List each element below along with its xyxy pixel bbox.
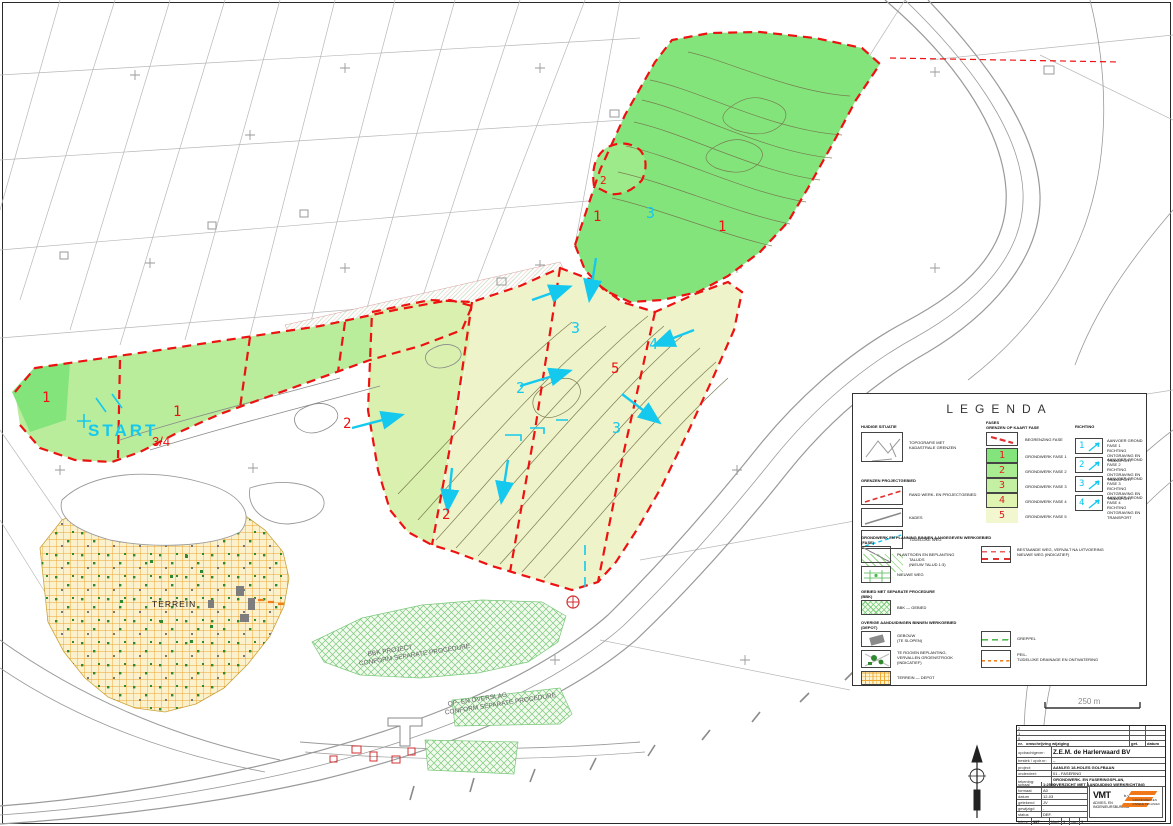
legend-plantsoen-label: PLANTSOEN EN BEPLANTING [897, 552, 977, 557]
legend-richting-header: RICHTING [1075, 424, 1094, 429]
legend-left-row1: TOPOGRAFIE MET KADASTRALE GRENZEN [909, 440, 979, 450]
svg-text:1: 1 [173, 404, 181, 420]
svg-text:2: 2 [442, 507, 450, 523]
logo-word: VMT [1093, 790, 1111, 800]
scale-bar: 250 m [1045, 697, 1140, 708]
getekend-value: JV [1041, 800, 1087, 805]
gewijzigd-value: - [1041, 806, 1087, 811]
formaat-value: A0 [1041, 788, 1087, 793]
legend-swatch-richting4: 4 [1075, 495, 1103, 511]
bestek-value: – [1051, 758, 1165, 763]
rev-header-get: get. [1129, 741, 1145, 746]
svg-text:2: 2 [600, 174, 607, 187]
legend-title: LEGENDA [853, 402, 1146, 416]
legend-swatch-greppel [981, 631, 1011, 647]
legend-fase3-label: GRONDWERK FASE 3 [1025, 484, 1067, 489]
legend-richting4-label: AANVOER GROND FASE 4 RICHTING ONTGRAVING… [1107, 495, 1147, 520]
legend-swatch-plantsoen [861, 546, 891, 563]
rev-header-nr: nr. [1017, 741, 1025, 746]
logo-rsub: GRONDWERKEN CIVIELE TECHNIEK [1133, 799, 1160, 806]
legend-panel: LEGENDA HUIDIGE SITUATIE TOPOGRAFIE MET … [852, 393, 1147, 686]
svg-text:1: 1 [42, 390, 50, 406]
legend-swatch-kades [861, 508, 903, 527]
legend-swatch-fase1: 1 [986, 448, 1018, 463]
legend-fase2-label: GRONDWERK FASE 2 [1025, 469, 1067, 474]
legend-bbk-label: BBK — GEBIED [897, 605, 977, 610]
onderdeel-value: 01 - FASERING [1051, 771, 1165, 776]
legend-depot-label: TERREIN — DEPOT [897, 675, 977, 680]
svg-text:1: 1 [593, 209, 601, 225]
title-block: 2 1 0 nr. omschrijving wijziging get. da… [1016, 725, 1166, 822]
north-arrow [968, 746, 986, 818]
ponds [61, 474, 324, 545]
legend-swatch-weg-vervalt [981, 546, 1011, 563]
start-phase-label: 3/4 [152, 434, 170, 449]
field-label: onderdeel: [1017, 771, 1051, 776]
legend-swatch-richting2: 2 [1075, 457, 1103, 473]
teknr-value: 117 [1031, 818, 1049, 825]
legend-weg-vervalt-label: BESTAANDE WEG, VERVALT NA UITVOERING NIE… [1017, 547, 1127, 557]
legend-swatch-fase2: 2 [986, 463, 1018, 478]
legend-swatch-topografie [861, 432, 903, 462]
client-name: Z.E.M. de Harlerwaard BV [1051, 747, 1165, 757]
legend-bottom-header3: OVERIGE AANDUIDINGEN BINNEN WERKGEBIED (… [861, 620, 1061, 630]
legend-swatch-fase3: 3 [986, 478, 1018, 493]
legend-fase1-label: GRONDWERK FASE 1 [1025, 454, 1067, 459]
legend-swatch-richting1: 1 [1075, 438, 1103, 454]
legend-swatch-richting3: 3 [1075, 476, 1103, 492]
legend-swatch-bbk [861, 600, 891, 615]
project-value: AANLEG 18-HOLES GOLFBAAN [1051, 764, 1165, 770]
drawing-sheet: START 3/4 TERREIN BBK PROJECT CONFORM SE… [0, 0, 1173, 826]
legend-left-row5: TALUDS (NIEUW TALUD 1:3) [909, 557, 981, 567]
start-label: START [88, 421, 158, 440]
legend-swatch-fase-grens [986, 432, 1018, 446]
legend-swatch-nieuwe-weg [861, 566, 891, 583]
legend-swatch-gebouw [861, 631, 891, 647]
blad-value: 1 [1061, 818, 1069, 825]
legend-drainage-label: PEIL- TIJDELIJKE DRAINAGE EN ONTWATERING [1017, 652, 1127, 662]
legend-swatch-fase5: 5 [986, 508, 1018, 523]
datum-value: 12-03 [1041, 794, 1087, 799]
zone-phase-5-central [432, 268, 742, 590]
legend-swatch-fase4: 4 [986, 493, 1018, 508]
legend-gebouw-label: GEBOUW (TE SLOPEN) [897, 633, 977, 643]
legend-left-header2: GRENZEN PROJECTGEBIED [861, 478, 916, 483]
legend-left-row3: KADES [909, 515, 981, 520]
svg-text:5: 5 [611, 361, 619, 377]
svg-text:2: 2 [343, 416, 351, 432]
field-label: bestek / opdr.nr: [1017, 758, 1051, 763]
company-logo: VMT b.v. ADVIES- EN INGENIEURSBUREAU GRO… [1089, 786, 1163, 818]
schaal-value: 1:2500 [1041, 782, 1087, 787]
legend-swatch-drainage [981, 650, 1011, 668]
terrein-label: TERREIN [152, 599, 196, 609]
groynes [410, 671, 854, 800]
rev-header-datum: datum [1145, 741, 1165, 746]
legend-rooien-label: TE ROOIEN BEPLANTING, VERVALLEN GROENSTR… [897, 650, 977, 665]
svg-text:4: 4 [649, 335, 658, 353]
legend-fase4-label: GRONDWERK FASE 4 [1025, 499, 1067, 504]
legend-fase5-label: GRONDWERK FASE 5 [1025, 514, 1067, 519]
legend-left-header1: HUIDIGE SITUATIE [861, 424, 897, 429]
legend-nieuwe-weg-label: NIEUWE WEG [897, 572, 977, 577]
legend-bottom-header1: GRONDWERK EN PLANNING BINNEN AANGEGEVEN … [861, 535, 1061, 545]
svg-text:3: 3 [612, 419, 621, 437]
van-value: 1 [1079, 818, 1087, 825]
field-label: project: [1017, 765, 1051, 770]
legend-swatch-grens [861, 486, 903, 505]
svg-text:3: 3 [571, 319, 580, 337]
status-value: DEF. [1041, 812, 1087, 817]
svg-text:2: 2 [516, 379, 525, 397]
svg-text:1: 1 [718, 219, 726, 235]
field-label: opdrachtgever: [1017, 750, 1051, 755]
legend-left-row2: RAND WERK- EN PROJECTGEBIED [909, 492, 981, 497]
svg-text:3: 3 [646, 204, 655, 222]
scale-label: 250 m [1078, 697, 1101, 706]
legend-phases-header: FASES GRENZEN OP KAART FASE [986, 420, 1056, 430]
legend-greppel-label: GREPPEL [1017, 636, 1117, 641]
legend-swatch-depot [861, 671, 891, 685]
rev-nr: 0 [1017, 736, 1025, 741]
legend-swatch-rooien [861, 650, 891, 668]
legend-bottom-header2: GEBIED MET SEPARATE PROCEDURE (BBK) [861, 589, 1061, 599]
rev-header-descr: omschrijving wijziging [1025, 741, 1129, 746]
